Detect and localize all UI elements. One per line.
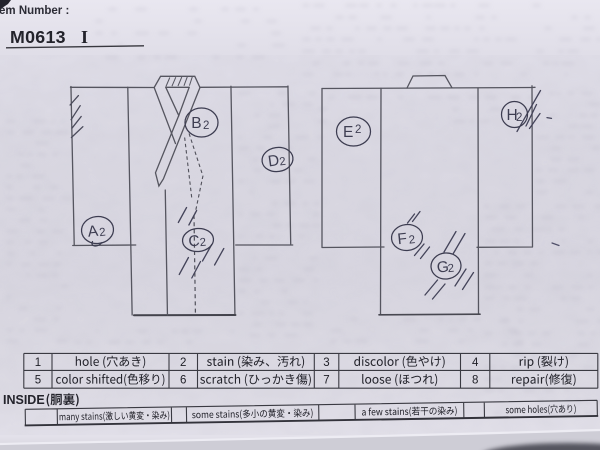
svg-text:2: 2 — [180, 357, 186, 369]
svg-text:4: 4 — [472, 357, 479, 369]
svg-text:2: 2 — [447, 263, 454, 276]
svg-text:INSIDE: INSIDE — [3, 393, 45, 407]
svg-text:M0613: M0613 — [10, 27, 66, 47]
svg-text:I: I — [81, 27, 88, 47]
svg-text:2: 2 — [408, 234, 416, 247]
svg-text:C: C — [188, 233, 201, 251]
svg-text:2: 2 — [199, 237, 206, 250]
svg-text:2: 2 — [355, 124, 361, 136]
svg-text:em Number :: em Number : — [0, 5, 69, 17]
svg-text:E: E — [343, 124, 353, 141]
svg-text:8: 8 — [472, 375, 478, 387]
svg-text:B: B — [191, 115, 201, 132]
svg-text:1: 1 — [35, 357, 41, 369]
svg-text:7: 7 — [323, 375, 329, 387]
svg-text:5: 5 — [35, 375, 41, 387]
svg-text:2: 2 — [203, 120, 209, 132]
svg-text:3: 3 — [323, 357, 329, 369]
svg-text:6: 6 — [180, 375, 186, 387]
svg-text:2: 2 — [516, 112, 522, 124]
svg-text:F: F — [397, 230, 408, 248]
svg-text:2: 2 — [99, 227, 107, 240]
